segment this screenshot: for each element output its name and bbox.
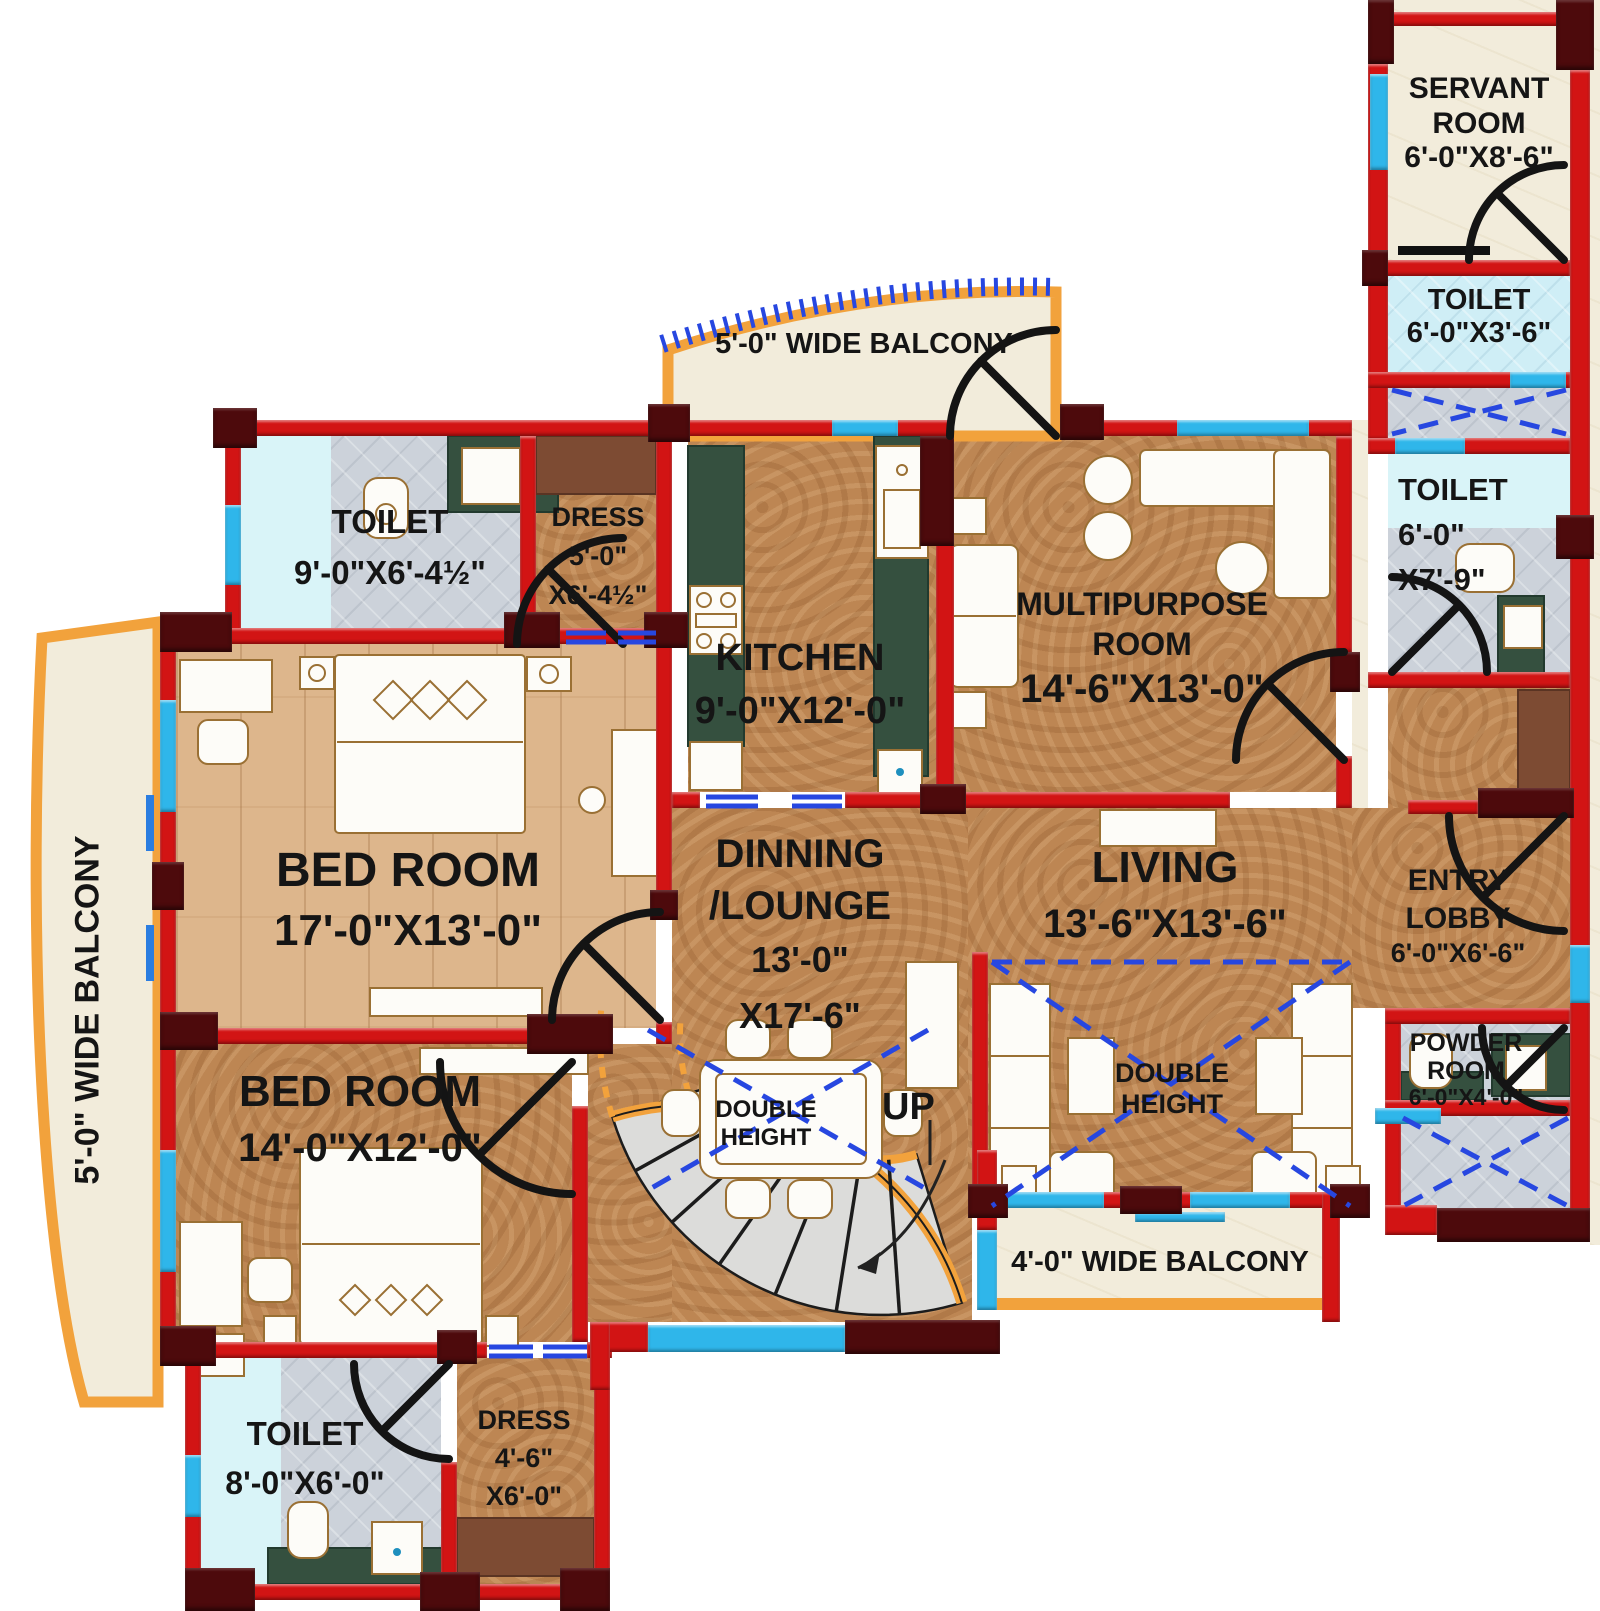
label-toilet2: TOILET8'-0"X6'-0" xyxy=(225,1408,384,1509)
window-icon xyxy=(832,420,898,436)
wall xyxy=(656,420,672,644)
floor-plan-canvas: SERVANTROOM6'-0"X8'-6" TOILET6'-0"X3'-6"… xyxy=(0,0,1600,1611)
cabinet-icon xyxy=(906,962,958,1088)
window-icon xyxy=(1370,74,1388,170)
label-toilet-right: TOILET6'-0"X7'-9" xyxy=(1398,468,1508,603)
label-dress-master: DRESS5'-0"X6'-4½" xyxy=(549,498,648,615)
stool-icon xyxy=(579,787,605,813)
label-bedroom1: BED ROOM17'-0"X13'-0" xyxy=(274,840,542,960)
desk-icon xyxy=(180,660,272,712)
wall-pier xyxy=(968,1184,1008,1218)
window-icon xyxy=(648,1325,845,1352)
chair-icon xyxy=(1084,456,1132,504)
wall-pier xyxy=(152,862,184,910)
window-icon xyxy=(1570,945,1590,1003)
wall-pier xyxy=(1060,404,1104,440)
wall xyxy=(672,420,952,436)
wall xyxy=(1388,12,1570,26)
label-living: LIVING13'-6"X13'-6" xyxy=(1043,838,1287,951)
wc-icon xyxy=(288,1502,328,1558)
wall-pier xyxy=(213,408,257,448)
chair-icon xyxy=(726,1180,770,1218)
wall-pier xyxy=(527,1014,613,1054)
wall xyxy=(1385,1205,1437,1235)
wall-pier xyxy=(1556,515,1594,559)
label-up: UP xyxy=(882,1086,935,1130)
wall-pier xyxy=(1330,1184,1370,1218)
wall-pier xyxy=(845,1320,1000,1354)
desk-return-icon xyxy=(1274,450,1330,598)
window-icon xyxy=(225,505,241,585)
wall-pier xyxy=(1368,0,1394,64)
wall-pier xyxy=(648,404,690,442)
label-bedroom2: BED ROOM14'-0"X12'-0" xyxy=(238,1062,482,1175)
chair-icon xyxy=(1084,512,1132,560)
wall-pier xyxy=(1478,788,1574,818)
wall-pier xyxy=(504,612,560,648)
bedroom1-furniture xyxy=(180,655,660,1016)
wall xyxy=(672,792,700,808)
desk-icon xyxy=(180,1222,242,1326)
chair-icon xyxy=(662,1090,700,1136)
wall xyxy=(1336,436,1352,652)
wall xyxy=(1368,672,1570,688)
label-dinning: DINNING/LOUNGE 13'-0" X17'-6" xyxy=(709,828,891,1044)
window-icon xyxy=(1177,420,1309,436)
wall-pier xyxy=(920,784,966,814)
tv-cabinet-icon xyxy=(370,988,542,1016)
label-multipurpose: MULTIPURPOSEROOM 14'-6"X13'-0" xyxy=(1016,584,1268,714)
label-balcony-bottom: 4'-0" WIDE BALCONY xyxy=(1011,1246,1309,1279)
nightstand-icon xyxy=(486,1316,518,1346)
coffee-table-icon xyxy=(1256,1038,1302,1114)
wall-pier xyxy=(437,1330,477,1364)
window-icon xyxy=(1375,1108,1441,1124)
window-icon xyxy=(160,1150,176,1272)
wall-pier xyxy=(160,1326,216,1366)
wall-pier xyxy=(1437,1208,1590,1242)
window-icon xyxy=(185,1455,201,1517)
label-double-height-stairs: DOUBLEHEIGHT xyxy=(715,1096,816,1151)
wall xyxy=(572,1106,588,1342)
label-double-height-living: DOUBLEHEIGHT xyxy=(1115,1058,1229,1120)
wardrobe-icon xyxy=(536,436,656,494)
chair-icon xyxy=(788,1180,832,1218)
stool-icon xyxy=(950,692,986,728)
window-icon xyxy=(1000,1192,1104,1208)
furniture-layer xyxy=(0,0,1600,1611)
kitchen-fixtures xyxy=(688,436,928,794)
wall-pier xyxy=(160,1012,218,1050)
wall xyxy=(590,1322,610,1390)
wall-pier xyxy=(160,612,232,652)
wall-pier xyxy=(920,436,954,546)
chair-icon xyxy=(248,1258,292,1302)
wall-pier xyxy=(1120,1186,1182,1214)
kitchen-unit-icon xyxy=(690,742,742,790)
wall xyxy=(1336,756,1352,808)
wall xyxy=(656,1022,672,1044)
wall xyxy=(656,644,672,914)
wall xyxy=(225,420,672,436)
wall xyxy=(1368,260,1570,276)
wall xyxy=(160,628,672,644)
wall-pier xyxy=(1330,652,1360,692)
label-balcony-left: 5'-0" WIDE BALCONY xyxy=(68,835,107,1184)
washbasin-icon xyxy=(1504,606,1542,648)
wall xyxy=(1385,1008,1570,1024)
wall xyxy=(954,792,1230,808)
window-icon xyxy=(1395,438,1465,454)
window-icon xyxy=(977,1230,997,1310)
wall-pier xyxy=(560,1568,610,1611)
wall-pier xyxy=(185,1568,255,1611)
label-powder-room: POWDERROOM 6'-0"X4'-0" xyxy=(1409,1030,1524,1110)
window-icon xyxy=(1510,372,1566,388)
label-servant-room: SERVANTROOM6'-0"X8'-6" xyxy=(1404,72,1553,176)
wall-pier xyxy=(644,612,688,648)
wall xyxy=(1570,70,1590,1240)
nightstand-icon xyxy=(527,657,571,691)
stool-icon xyxy=(950,498,986,534)
coffee-table-icon xyxy=(1068,1038,1114,1114)
wall xyxy=(520,436,536,628)
wall xyxy=(160,628,176,1044)
chair-icon xyxy=(198,720,248,764)
dressing-table-icon xyxy=(612,730,660,876)
label-dress2: DRESS4'-6"X6'-0" xyxy=(477,1402,570,1515)
window-icon xyxy=(1190,1192,1290,1208)
wardrobe-icon xyxy=(1518,690,1570,790)
label-entry-lobby: ENTRYLOBBY 6'-0"X6'-6" xyxy=(1391,862,1526,971)
wall xyxy=(1408,800,1478,814)
label-kitchen: KITCHEN9'-0"X12'-0" xyxy=(695,632,905,738)
balcony-tick-icon xyxy=(146,795,154,851)
wall-pier xyxy=(650,890,678,920)
balcony-tick-icon xyxy=(146,925,154,981)
threshold-icon xyxy=(1398,246,1490,255)
label-toilet-topright: TOILET6'-0"X3'-6" xyxy=(1407,284,1551,351)
wall-pier xyxy=(420,1572,480,1611)
window-icon xyxy=(160,700,176,812)
wall xyxy=(160,1028,590,1044)
wall-pier xyxy=(1362,250,1388,286)
label-toilet-master: TOILET9'-0"X6'-4½" xyxy=(294,496,486,598)
label-balcony-top: 5'-0" WIDE BALCONY xyxy=(715,328,1013,361)
nightstand-icon xyxy=(300,657,334,689)
wall-pier xyxy=(1556,0,1594,70)
